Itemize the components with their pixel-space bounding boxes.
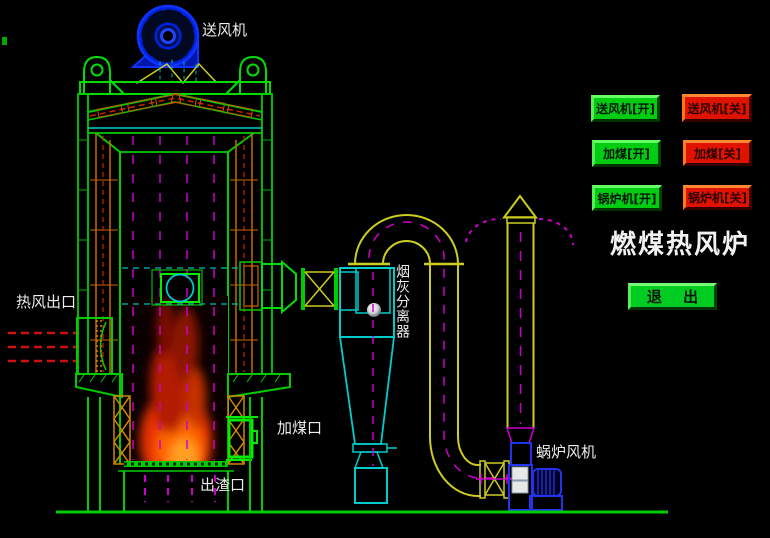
coal-on-button[interactable]: 加煤[开] [592,140,661,167]
hot-air-outlet-duct [8,318,112,374]
blower-on-button[interactable]: 送风机[开] [591,95,660,122]
slag-outlet-label: 出渣口 [200,477,245,493]
hmi-screen: 送风机 热风出口 烟灰分离器 加煤口 出渣口 蜗炉风机 送风机[开] 送风机[关… [0,0,770,538]
flue-outlet-duct [240,262,338,312]
smoke-right [539,219,573,245]
corner-artifact [2,37,7,45]
level-ball-indicator [367,303,381,317]
furnace-diagram [0,0,770,538]
chimney [466,196,573,443]
smoke-left [466,219,501,242]
flex-coupling [476,461,512,498]
scroll-fan-label: 蜗炉风机 [536,444,596,460]
screen-title: 燃煤热风炉 [610,224,750,261]
hot-air-outlet-label: 热风出口 [16,294,76,310]
coal-off-button[interactable]: 加煤[关] [683,140,752,166]
ash-separator-label: 烟灰分离器 [394,264,410,354]
cyclone-separator [340,268,397,503]
hot-air-flow-arrows [8,333,76,361]
boiler-on-button[interactable]: 锅炉机[开] [592,185,662,211]
gas-flow-line [369,222,511,478]
blower-fan-icon [133,6,216,83]
boiler-off-button[interactable]: 锅炉机[关] [683,185,752,210]
blower-label: 送风机 [202,22,247,38]
blower-off-button[interactable]: 送风机[关] [682,94,752,122]
coal-inlet-label: 加煤口 [277,420,322,436]
exit-button[interactable]: 退 出 [628,283,717,310]
